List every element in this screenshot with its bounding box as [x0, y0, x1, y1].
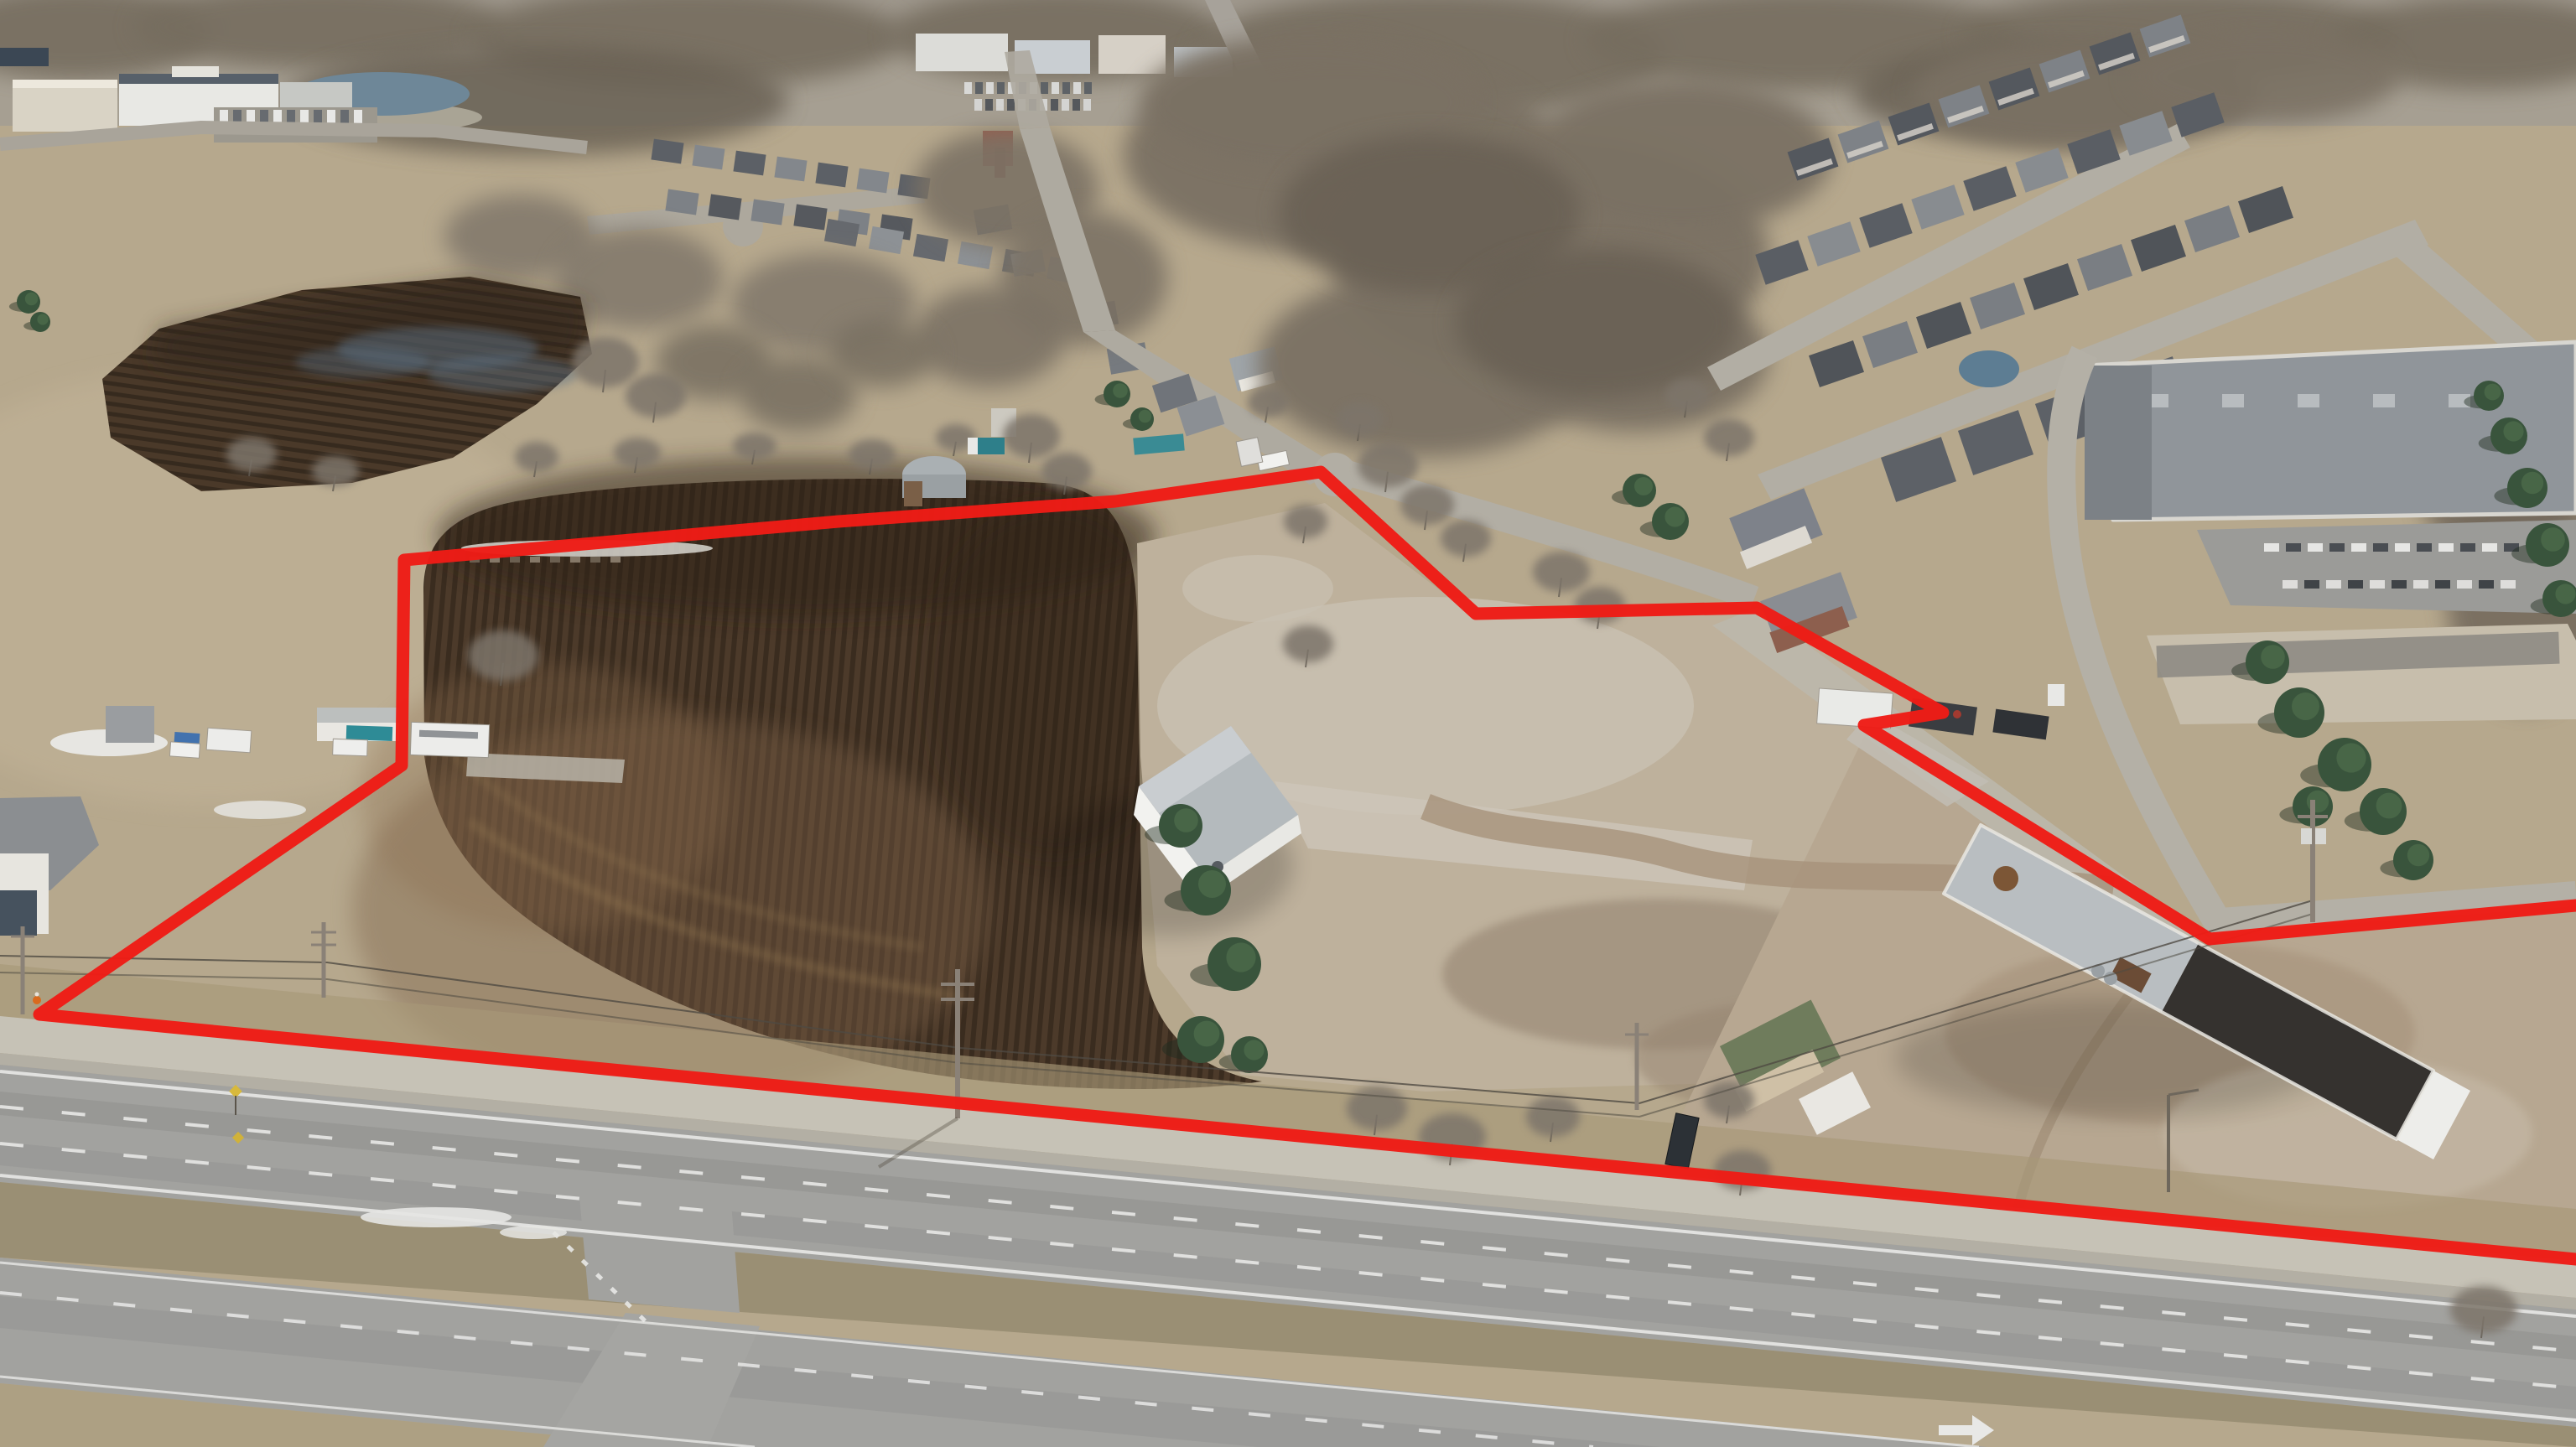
house-row — [774, 157, 807, 182]
parked-cars — [2308, 543, 2323, 552]
wet-patch — [428, 355, 579, 392]
spruce-tree-light — [2503, 421, 2523, 441]
spruce-tree-light — [2485, 384, 2501, 401]
car-lot-row — [974, 99, 982, 111]
spruce-tree-light — [2336, 743, 2366, 772]
big-commercial-wing — [2085, 366, 2152, 520]
commercial-box — [916, 34, 1008, 71]
spruce-tree-light — [1244, 1040, 1264, 1060]
car-lot-row — [1062, 99, 1069, 111]
bare-tree — [2450, 1286, 2517, 1333]
white-suv — [333, 739, 368, 755]
teal-boat — [346, 725, 393, 741]
car-lot-row — [1072, 99, 1080, 111]
spruce-tree-light — [1634, 477, 1653, 495]
car-lot-row — [1007, 99, 1015, 111]
car-lot-row — [964, 82, 972, 94]
car-lot-row — [1083, 99, 1091, 111]
spruce-tree-light — [37, 314, 48, 324]
building-strip — [172, 66, 219, 77]
bare-tree — [515, 442, 558, 472]
car-lot-row — [975, 82, 983, 94]
spruce-tree-light — [1226, 942, 1255, 972]
parked-cars — [2395, 543, 2410, 552]
parked-cars — [2329, 543, 2345, 552]
parked-cars — [2351, 543, 2366, 552]
rubble-row — [530, 557, 540, 563]
transformer — [2315, 828, 2326, 844]
quonset-front — [904, 481, 922, 506]
bare-tree — [849, 439, 896, 469]
worker-orange-vest — [33, 996, 41, 1004]
parked-cars — [2264, 543, 2279, 552]
house-row — [815, 163, 848, 188]
parked-cars — [2438, 543, 2454, 552]
car-lot-row — [985, 99, 993, 111]
car-lot-row — [1051, 99, 1058, 111]
white-shed-roof — [317, 708, 399, 723]
house-row — [708, 194, 741, 220]
forest-dark — [1455, 247, 1740, 398]
parked-cars — [2370, 580, 2385, 589]
median-crossover — [579, 1187, 740, 1313]
parked-cars — [2479, 580, 2494, 589]
car-lot-row — [1062, 82, 1070, 94]
parked-cars — [2457, 580, 2472, 589]
car-lot-row — [996, 99, 1004, 111]
white-box — [2048, 684, 2064, 706]
transformer — [2301, 828, 2312, 844]
parked-cars — [2460, 543, 2475, 552]
camper-trailer — [206, 728, 252, 753]
bare-tree — [1003, 414, 1060, 458]
parked-cars — [2326, 580, 2341, 589]
spruce-tree-light — [1139, 410, 1151, 423]
bare-tree — [468, 630, 538, 681]
house-row — [692, 145, 724, 170]
parked-cars — [2413, 580, 2428, 589]
wet-patch — [295, 347, 429, 377]
bare-tree — [1441, 520, 1491, 557]
house-row — [733, 151, 766, 176]
building-navy — [0, 48, 49, 66]
scene-layers — [0, 0, 2576, 1447]
rooftop-units — [2298, 394, 2319, 407]
spruce-tree-light — [1113, 383, 1128, 398]
rubble-row — [570, 557, 580, 563]
parked-cars — [2482, 543, 2497, 552]
car-lot-row — [1052, 82, 1059, 94]
aerial-photo-frame — [0, 0, 2576, 1447]
spruce-tree-light — [2541, 527, 2565, 552]
car-lot-row — [1084, 82, 1092, 94]
parked-cars — [2392, 580, 2407, 589]
bare-tree — [1248, 387, 1288, 418]
corner-house-dark — [0, 890, 37, 936]
spruce-tree-light — [1174, 808, 1198, 832]
car-lot-row — [997, 82, 1005, 94]
bare-tree — [312, 456, 359, 486]
spruce-tree-light — [2407, 844, 2429, 866]
rusty-roof-vent — [1993, 866, 2018, 891]
bare-tree — [1526, 1097, 1580, 1137]
spruce-tree-light — [2555, 583, 2575, 604]
warehouse-beige-roofedge — [13, 80, 117, 88]
bare-tree — [1283, 625, 1333, 662]
median-snow — [361, 1207, 512, 1227]
bare-tree — [1704, 419, 1754, 456]
teal-truck-cab — [968, 438, 978, 454]
bare-tree — [1358, 443, 1418, 487]
bare-tree — [1284, 505, 1327, 538]
bare-tree — [1337, 402, 1384, 436]
car-lot-row — [986, 82, 994, 94]
median-snow — [500, 1226, 567, 1239]
rubble-row — [590, 557, 600, 563]
parked-cars — [2286, 543, 2301, 552]
parked-cars — [2373, 543, 2388, 552]
house-row — [665, 189, 699, 215]
spruce-tree-light — [2292, 692, 2319, 720]
house-row — [651, 139, 683, 164]
parked-cars — [2501, 580, 2516, 589]
house-row — [793, 205, 827, 231]
parked-cars — [2435, 580, 2450, 589]
parked-cars — [2283, 580, 2298, 589]
bare-tree — [1665, 379, 1709, 412]
spruce-tree-light — [2261, 645, 2285, 669]
bare-tree — [1533, 552, 1590, 592]
aerial-photo — [0, 0, 2576, 1447]
bare-tree — [614, 438, 661, 468]
rubble-row — [610, 557, 621, 563]
field-light-sweep — [361, 664, 730, 932]
commercial-box — [1098, 35, 1166, 74]
spruce-tree-light — [1665, 506, 1685, 526]
white-suv — [169, 742, 200, 758]
rubble-row — [550, 557, 560, 563]
bare-tree — [1347, 1087, 1407, 1130]
parked-cars — [2417, 543, 2432, 552]
bare-tree — [572, 337, 639, 387]
spruce-tree-light — [2307, 791, 2329, 812]
camper-trailer — [410, 722, 489, 757]
rubble-row — [510, 557, 520, 563]
bare-tree — [626, 374, 686, 418]
spruce-tree-light — [1198, 870, 1226, 898]
gray-shed — [106, 706, 154, 743]
house-row — [856, 169, 889, 194]
bare-tree — [1041, 453, 1092, 490]
trees — [914, 287, 1065, 387]
snow-patch — [214, 801, 306, 819]
parked-trucks — [354, 110, 362, 125]
spruce-tree-light — [1194, 1021, 1220, 1047]
bare-tree — [1400, 485, 1454, 525]
red-equipment — [1953, 710, 1961, 718]
parking-lot — [2197, 520, 2576, 614]
bare-tree — [226, 438, 277, 471]
rooftop-units — [2373, 394, 2395, 407]
rooftop-units — [2222, 394, 2244, 407]
spruce-tree-light — [25, 293, 38, 305]
trees — [828, 320, 936, 387]
bare-tree — [1704, 1081, 1754, 1118]
spruce-tree-light — [2376, 793, 2402, 819]
subdivision-pond — [1959, 350, 2019, 387]
parked-trucks — [340, 110, 349, 125]
parked-cars — [2348, 580, 2363, 589]
lot-gravel — [1182, 555, 1333, 622]
bare-tree — [733, 433, 776, 459]
house-row — [750, 200, 784, 226]
spruce-tree-light — [2521, 472, 2543, 494]
horse-trailer — [1236, 438, 1263, 467]
car-lot-row — [1041, 82, 1048, 94]
worker-head — [35, 993, 39, 997]
car-lot-row — [1073, 82, 1081, 94]
parked-cars — [2304, 580, 2319, 589]
